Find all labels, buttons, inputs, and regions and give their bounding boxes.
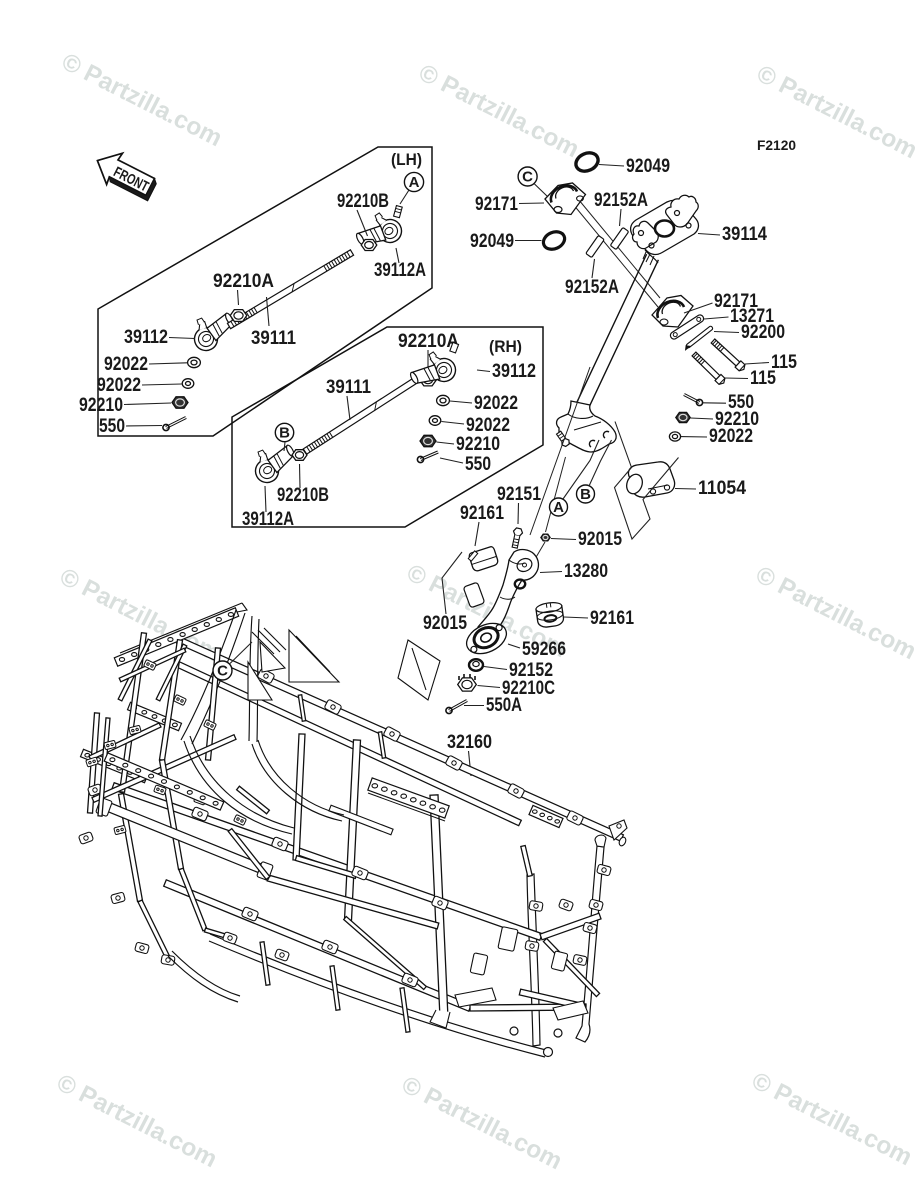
svg-text:B: B xyxy=(580,486,591,503)
svg-text:39112A: 39112A xyxy=(374,260,426,281)
svg-text:(LH): (LH) xyxy=(391,150,422,169)
svg-text:92171: 92171 xyxy=(475,194,518,215)
svg-text:92022: 92022 xyxy=(104,354,148,375)
svg-text:39112: 39112 xyxy=(124,327,168,348)
svg-text:550A: 550A xyxy=(486,695,522,716)
svg-text:39112: 39112 xyxy=(492,361,536,382)
svg-text:39111: 39111 xyxy=(326,377,371,398)
svg-text:C: C xyxy=(217,663,228,680)
svg-text:92152A: 92152A xyxy=(594,190,648,211)
svg-text:550: 550 xyxy=(465,454,491,475)
svg-text:A: A xyxy=(553,499,564,516)
svg-text:92022: 92022 xyxy=(474,393,518,414)
svg-text:92161: 92161 xyxy=(590,608,634,629)
svg-text:92015: 92015 xyxy=(423,613,467,634)
svg-text:92200: 92200 xyxy=(741,322,785,343)
svg-text:92152A: 92152A xyxy=(565,277,619,298)
svg-text:92210: 92210 xyxy=(456,434,500,455)
svg-text:92015: 92015 xyxy=(578,529,622,550)
svg-text:B: B xyxy=(279,425,290,442)
svg-text:39112A: 39112A xyxy=(242,509,294,530)
svg-text:92022: 92022 xyxy=(466,415,510,436)
svg-text:92022: 92022 xyxy=(709,426,753,447)
svg-text:92151: 92151 xyxy=(497,484,541,505)
svg-text:92022: 92022 xyxy=(97,375,141,396)
svg-text:13280: 13280 xyxy=(564,561,608,582)
svg-text:92210B: 92210B xyxy=(277,485,329,506)
svg-text:39111: 39111 xyxy=(251,328,296,349)
svg-text:11054: 11054 xyxy=(698,478,746,499)
svg-text:92161: 92161 xyxy=(460,503,504,524)
svg-text:32160: 32160 xyxy=(447,732,492,753)
svg-text:92049: 92049 xyxy=(470,231,514,252)
svg-text:(RH): (RH) xyxy=(489,337,522,356)
svg-text:92210B: 92210B xyxy=(337,191,389,212)
svg-text:39114: 39114 xyxy=(722,224,767,245)
svg-text:A: A xyxy=(409,174,420,191)
svg-text:550: 550 xyxy=(99,416,125,437)
svg-text:F2120: F2120 xyxy=(757,137,796,153)
svg-text:92210: 92210 xyxy=(79,395,123,416)
svg-text:92210A: 92210A xyxy=(213,271,274,292)
svg-text:92049: 92049 xyxy=(626,156,670,177)
svg-text:115: 115 xyxy=(750,368,776,389)
svg-text:59266: 59266 xyxy=(522,639,566,660)
svg-text:C: C xyxy=(522,169,533,186)
